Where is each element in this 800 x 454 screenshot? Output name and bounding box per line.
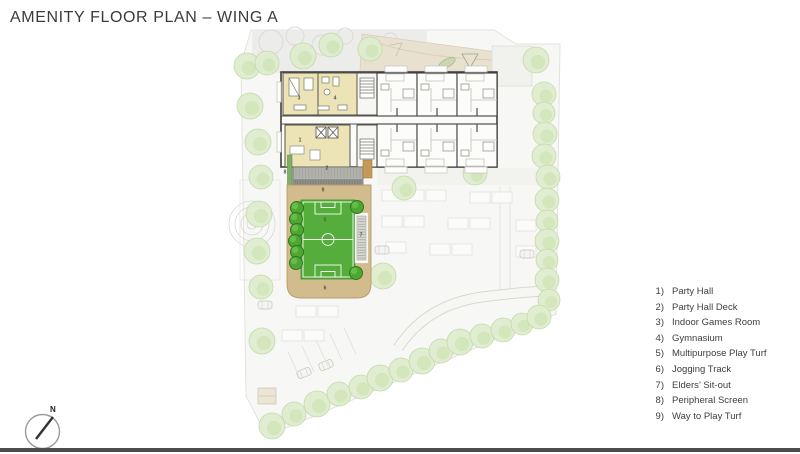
site-structure [258, 388, 276, 404]
legend-label: Way to Play Turf [672, 411, 741, 422]
deck-ramp [363, 160, 372, 178]
peripheral-screen [288, 155, 293, 187]
marker-party-hall-deck: 2 [326, 167, 329, 172]
marker-party-hall: 1 [299, 139, 302, 144]
legend-label: Party Hall [672, 286, 713, 297]
legend-label: Multipurpose Play Turf [672, 348, 767, 359]
legend-item: 5)Multipurpose Play Turf [650, 348, 767, 364]
legend: 1)Party Hall 2)Party Hall Deck 3)Indoor … [650, 286, 767, 426]
marker-multipurpose-turf: 5 [324, 219, 327, 224]
legend-label: Indoor Games Room [672, 317, 760, 328]
legend-item: 8)Peripheral Screen [650, 395, 767, 411]
marker-peripheral-screen: 8 [284, 171, 287, 176]
legend-item: 9)Way to Play Turf [650, 411, 767, 427]
legend-item: 7)Elders’ Sit-out [650, 380, 767, 396]
legend-item: 4)Gymnasium [650, 333, 767, 349]
compass-north-label: N [50, 405, 56, 414]
marker-indoor-games-room: 3 [298, 97, 301, 102]
legend-item: 6)Jogging Track [650, 364, 767, 380]
legend-label: Gymnasium [672, 333, 723, 344]
marker-jogging-track: 6 [324, 287, 327, 292]
legend-item: 2)Party Hall Deck [650, 302, 767, 318]
legend-item: 1)Party Hall [650, 286, 767, 302]
marker-elders-sitout: 7 [360, 234, 363, 239]
legend-label: Elders’ Sit-out [672, 380, 731, 391]
marker-gymnasium: 4 [334, 97, 337, 102]
legend-label: Peripheral Screen [672, 395, 748, 406]
marker-way-to-play-turf: 9 [322, 189, 325, 194]
legend-label: Jogging Track [672, 364, 731, 375]
play-turf [301, 200, 355, 279]
slide-bottom-bar [0, 448, 800, 452]
north-compass [26, 415, 60, 449]
legend-label: Party Hall Deck [672, 302, 737, 313]
slide: AMENITY FLOOR PLAN – WING A [0, 0, 800, 454]
legend-item: 3)Indoor Games Room [650, 317, 767, 333]
building-wing-a [277, 66, 497, 173]
